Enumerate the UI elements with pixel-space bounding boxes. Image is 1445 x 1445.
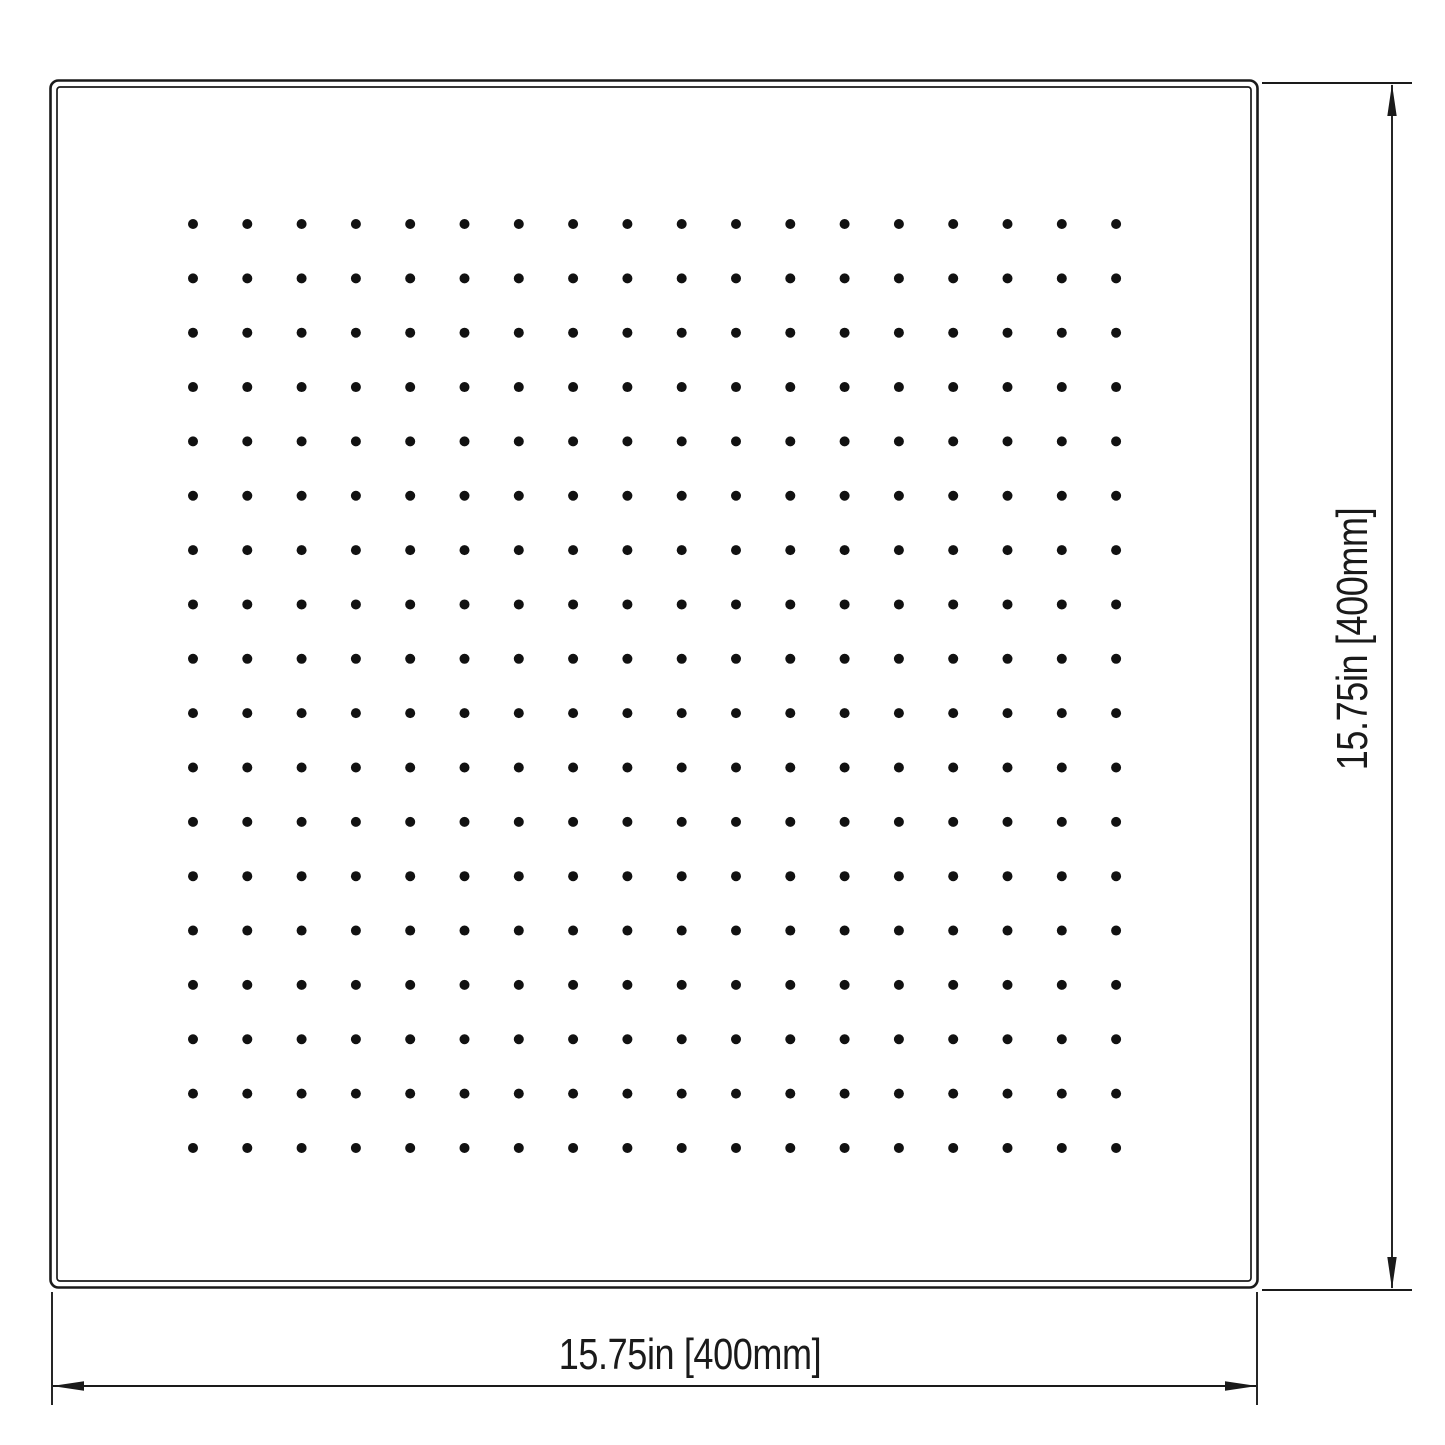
nozzle-dot bbox=[460, 817, 470, 827]
nozzle-dot bbox=[731, 1143, 741, 1153]
nozzle-dot bbox=[894, 1143, 904, 1153]
nozzle-dot bbox=[242, 273, 252, 283]
nozzle-dot bbox=[568, 1143, 578, 1153]
nozzle-dot bbox=[731, 1089, 741, 1099]
nozzle-dot bbox=[840, 1034, 850, 1044]
nozzle-grid bbox=[188, 219, 1121, 1153]
nozzle-dot bbox=[568, 926, 578, 936]
nozzle-dot bbox=[677, 1089, 687, 1099]
nozzle-dot bbox=[297, 545, 307, 555]
nozzle-dot bbox=[948, 1143, 958, 1153]
nozzle-dot bbox=[785, 871, 795, 881]
nozzle-dot bbox=[785, 382, 795, 392]
nozzle-dot bbox=[840, 1089, 850, 1099]
nozzle-dot bbox=[351, 1143, 361, 1153]
nozzle-dot bbox=[242, 599, 252, 609]
technical-drawing-canvas: 15.75in [400mm] 15.75in [400mm] bbox=[0, 0, 1445, 1445]
nozzle-dot bbox=[1057, 219, 1067, 229]
nozzle-dot bbox=[1111, 708, 1121, 718]
nozzle-dot bbox=[514, 763, 524, 773]
nozzle-dot bbox=[405, 436, 415, 446]
nozzle-dot bbox=[242, 871, 252, 881]
nozzle-dot bbox=[731, 382, 741, 392]
nozzle-dot bbox=[405, 328, 415, 338]
nozzle-dot bbox=[351, 382, 361, 392]
nozzle-dot bbox=[1057, 599, 1067, 609]
nozzle-dot bbox=[840, 817, 850, 827]
nozzle-dot bbox=[242, 491, 252, 501]
nozzle-dot bbox=[242, 382, 252, 392]
nozzle-dot bbox=[460, 382, 470, 392]
nozzle-dot bbox=[894, 654, 904, 664]
nozzle-dot bbox=[1111, 328, 1121, 338]
nozzle-dot bbox=[460, 871, 470, 881]
nozzle-dot bbox=[460, 1143, 470, 1153]
nozzle-dot bbox=[894, 273, 904, 283]
nozzle-dot bbox=[1111, 926, 1121, 936]
nozzle-dot bbox=[351, 545, 361, 555]
nozzle-dot bbox=[948, 1034, 958, 1044]
nozzle-dot bbox=[731, 328, 741, 338]
nozzle-dot bbox=[460, 1034, 470, 1044]
nozzle-dot bbox=[1111, 599, 1121, 609]
nozzle-dot bbox=[677, 491, 687, 501]
nozzle-dot bbox=[785, 328, 795, 338]
nozzle-dot bbox=[731, 654, 741, 664]
nozzle-dot bbox=[948, 491, 958, 501]
nozzle-dot bbox=[188, 545, 198, 555]
nozzle-dot bbox=[242, 436, 252, 446]
nozzle-dot bbox=[785, 817, 795, 827]
arrow-left-icon bbox=[52, 1381, 84, 1390]
nozzle-dot bbox=[1111, 436, 1121, 446]
nozzle-dot bbox=[514, 545, 524, 555]
nozzle-dot bbox=[460, 654, 470, 664]
nozzle-dot bbox=[731, 1034, 741, 1044]
nozzle-dot bbox=[297, 708, 307, 718]
nozzle-dot bbox=[514, 1089, 524, 1099]
nozzle-dot bbox=[188, 273, 198, 283]
nozzle-dot bbox=[622, 545, 632, 555]
nozzle-dot bbox=[351, 599, 361, 609]
nozzle-dot bbox=[622, 1034, 632, 1044]
nozzle-dot bbox=[514, 491, 524, 501]
nozzle-dot bbox=[568, 382, 578, 392]
nozzle-dot bbox=[1003, 436, 1013, 446]
nozzle-dot bbox=[677, 708, 687, 718]
nozzle-dot bbox=[1057, 763, 1067, 773]
nozzle-dot bbox=[514, 599, 524, 609]
nozzle-dot bbox=[948, 545, 958, 555]
nozzle-dot bbox=[785, 654, 795, 664]
nozzle-dot bbox=[785, 219, 795, 229]
nozzle-dot bbox=[677, 436, 687, 446]
nozzle-dot bbox=[297, 219, 307, 229]
nozzle-dot bbox=[894, 871, 904, 881]
nozzle-dot bbox=[622, 1143, 632, 1153]
nozzle-dot bbox=[785, 1034, 795, 1044]
nozzle-dot bbox=[188, 491, 198, 501]
nozzle-dot bbox=[405, 382, 415, 392]
nozzle-dot bbox=[568, 219, 578, 229]
nozzle-dot bbox=[894, 436, 904, 446]
nozzle-dot bbox=[894, 1089, 904, 1099]
nozzle-dot bbox=[731, 763, 741, 773]
nozzle-dot bbox=[297, 436, 307, 446]
nozzle-dot bbox=[948, 328, 958, 338]
nozzle-dot bbox=[894, 817, 904, 827]
nozzle-dot bbox=[1111, 273, 1121, 283]
nozzle-dot bbox=[622, 273, 632, 283]
nozzle-dot bbox=[297, 328, 307, 338]
nozzle-dot bbox=[188, 926, 198, 936]
nozzle-dot bbox=[731, 219, 741, 229]
nozzle-dot bbox=[242, 708, 252, 718]
nozzle-dot bbox=[622, 980, 632, 990]
nozzle-dot bbox=[1057, 273, 1067, 283]
nozzle-dot bbox=[297, 926, 307, 936]
nozzle-dot bbox=[405, 817, 415, 827]
nozzle-dot bbox=[1057, 545, 1067, 555]
nozzle-dot bbox=[405, 980, 415, 990]
nozzle-dot bbox=[405, 708, 415, 718]
nozzle-dot bbox=[1003, 871, 1013, 881]
nozzle-dot bbox=[405, 1143, 415, 1153]
nozzle-dot bbox=[1111, 1089, 1121, 1099]
nozzle-dot bbox=[568, 708, 578, 718]
nozzle-dot bbox=[622, 708, 632, 718]
nozzle-dot bbox=[514, 926, 524, 936]
nozzle-dot bbox=[351, 817, 361, 827]
nozzle-dot bbox=[1111, 817, 1121, 827]
nozzle-dot bbox=[840, 654, 850, 664]
nozzle-dot bbox=[514, 980, 524, 990]
nozzle-dot bbox=[1003, 599, 1013, 609]
nozzle-dot bbox=[1057, 980, 1067, 990]
nozzle-dot bbox=[622, 926, 632, 936]
nozzle-dot bbox=[622, 654, 632, 664]
nozzle-dot bbox=[894, 219, 904, 229]
width-dimension: 15.75in [400mm] bbox=[52, 1292, 1257, 1405]
nozzle-dot bbox=[460, 926, 470, 936]
nozzle-dot bbox=[568, 980, 578, 990]
nozzle-dot bbox=[894, 545, 904, 555]
nozzle-dot bbox=[1057, 654, 1067, 664]
nozzle-dot bbox=[568, 1089, 578, 1099]
shower-head-dimension-drawing: 15.75in [400mm] 15.75in [400mm] bbox=[0, 0, 1445, 1445]
nozzle-dot bbox=[568, 763, 578, 773]
nozzle-dot bbox=[1003, 708, 1013, 718]
nozzle-dot bbox=[731, 436, 741, 446]
nozzle-dot bbox=[948, 273, 958, 283]
nozzle-dot bbox=[677, 817, 687, 827]
nozzle-dot bbox=[188, 1034, 198, 1044]
nozzle-dot bbox=[785, 599, 795, 609]
nozzle-dot bbox=[894, 599, 904, 609]
nozzle-dot bbox=[188, 328, 198, 338]
nozzle-dot bbox=[948, 1089, 958, 1099]
nozzle-dot bbox=[405, 1034, 415, 1044]
nozzle-dot bbox=[514, 1143, 524, 1153]
nozzle-dot bbox=[677, 1143, 687, 1153]
nozzle-dot bbox=[514, 219, 524, 229]
nozzle-dot bbox=[1003, 382, 1013, 392]
nozzle-dot bbox=[840, 1143, 850, 1153]
nozzle-dot bbox=[1003, 491, 1013, 501]
nozzle-dot bbox=[188, 436, 198, 446]
nozzle-dot bbox=[460, 436, 470, 446]
nozzle-dot bbox=[514, 871, 524, 881]
nozzle-dot bbox=[1003, 654, 1013, 664]
nozzle-dot bbox=[460, 219, 470, 229]
nozzle-dot bbox=[405, 926, 415, 936]
nozzle-dot bbox=[677, 328, 687, 338]
nozzle-dot bbox=[297, 1089, 307, 1099]
height-dimension: 15.75in [400mm] bbox=[1262, 83, 1412, 1290]
nozzle-dot bbox=[242, 328, 252, 338]
nozzle-dot bbox=[894, 708, 904, 718]
nozzle-dot bbox=[677, 545, 687, 555]
nozzle-dot bbox=[840, 436, 850, 446]
nozzle-dot bbox=[677, 382, 687, 392]
nozzle-dot bbox=[948, 219, 958, 229]
nozzle-dot bbox=[785, 708, 795, 718]
nozzle-dot bbox=[785, 980, 795, 990]
nozzle-dot bbox=[894, 491, 904, 501]
nozzle-dot bbox=[297, 817, 307, 827]
nozzle-dot bbox=[840, 219, 850, 229]
nozzle-dot bbox=[297, 599, 307, 609]
nozzle-dot bbox=[731, 980, 741, 990]
nozzle-dot bbox=[622, 817, 632, 827]
nozzle-dot bbox=[1057, 817, 1067, 827]
nozzle-dot bbox=[785, 545, 795, 555]
nozzle-dot bbox=[405, 273, 415, 283]
nozzle-dot bbox=[622, 436, 632, 446]
nozzle-dot bbox=[840, 545, 850, 555]
nozzle-dot bbox=[1003, 1089, 1013, 1099]
nozzle-dot bbox=[242, 763, 252, 773]
nozzle-dot bbox=[242, 817, 252, 827]
nozzle-dot bbox=[677, 273, 687, 283]
nozzle-dot bbox=[1111, 871, 1121, 881]
nozzle-dot bbox=[460, 1089, 470, 1099]
nozzle-dot bbox=[351, 654, 361, 664]
nozzle-dot bbox=[405, 654, 415, 664]
nozzle-dot bbox=[622, 491, 632, 501]
nozzle-dot bbox=[460, 273, 470, 283]
shower-head-plate bbox=[51, 81, 1258, 1288]
nozzle-dot bbox=[351, 1089, 361, 1099]
nozzle-dot bbox=[188, 763, 198, 773]
nozzle-dot bbox=[622, 871, 632, 881]
nozzle-dot bbox=[188, 817, 198, 827]
nozzle-dot bbox=[1003, 817, 1013, 827]
nozzle-dot bbox=[622, 328, 632, 338]
nozzle-dot bbox=[405, 871, 415, 881]
nozzle-dot bbox=[242, 926, 252, 936]
nozzle-dot bbox=[677, 219, 687, 229]
width-dimension-label: 15.75in [400mm] bbox=[559, 1330, 822, 1379]
nozzle-dot bbox=[297, 273, 307, 283]
nozzle-dot bbox=[568, 817, 578, 827]
nozzle-dot bbox=[460, 763, 470, 773]
arrow-right-icon bbox=[1225, 1381, 1257, 1390]
nozzle-dot bbox=[622, 599, 632, 609]
nozzle-dot bbox=[297, 654, 307, 664]
nozzle-dot bbox=[568, 328, 578, 338]
nozzle-dot bbox=[622, 382, 632, 392]
nozzle-dot bbox=[1111, 1143, 1121, 1153]
nozzle-dot bbox=[351, 708, 361, 718]
nozzle-dot bbox=[351, 871, 361, 881]
nozzle-dot bbox=[677, 763, 687, 773]
nozzle-dot bbox=[188, 1143, 198, 1153]
nozzle-dot bbox=[460, 980, 470, 990]
nozzle-dot bbox=[297, 763, 307, 773]
nozzle-dot bbox=[1111, 763, 1121, 773]
nozzle-dot bbox=[622, 763, 632, 773]
nozzle-dot bbox=[188, 708, 198, 718]
nozzle-dot bbox=[297, 1143, 307, 1153]
arrow-down-icon bbox=[1387, 1257, 1396, 1289]
nozzle-dot bbox=[1057, 491, 1067, 501]
nozzle-dot bbox=[351, 273, 361, 283]
nozzle-dot bbox=[948, 817, 958, 827]
nozzle-dot bbox=[405, 219, 415, 229]
nozzle-dot bbox=[188, 219, 198, 229]
nozzle-dot bbox=[1057, 871, 1067, 881]
nozzle-dot bbox=[514, 436, 524, 446]
nozzle-dot bbox=[894, 980, 904, 990]
nozzle-dot bbox=[894, 1034, 904, 1044]
nozzle-dot bbox=[785, 763, 795, 773]
nozzle-dot bbox=[840, 763, 850, 773]
nozzle-dot bbox=[297, 491, 307, 501]
nozzle-dot bbox=[1111, 382, 1121, 392]
nozzle-dot bbox=[242, 1089, 252, 1099]
nozzle-dot bbox=[840, 871, 850, 881]
nozzle-dot bbox=[731, 926, 741, 936]
nozzle-dot bbox=[677, 654, 687, 664]
nozzle-dot bbox=[948, 382, 958, 392]
nozzle-dot bbox=[514, 273, 524, 283]
nozzle-dot bbox=[894, 926, 904, 936]
nozzle-dot bbox=[894, 328, 904, 338]
nozzle-dot bbox=[188, 599, 198, 609]
nozzle-dot bbox=[731, 599, 741, 609]
nozzle-dot bbox=[731, 708, 741, 718]
nozzle-dot bbox=[188, 871, 198, 881]
nozzle-dot bbox=[188, 1089, 198, 1099]
nozzle-dot bbox=[568, 545, 578, 555]
nozzle-dot bbox=[948, 599, 958, 609]
nozzle-dot bbox=[840, 328, 850, 338]
height-dimension-label: 15.75in [400mm] bbox=[1328, 508, 1377, 771]
nozzle-dot bbox=[840, 708, 850, 718]
nozzle-dot bbox=[1057, 328, 1067, 338]
nozzle-dot bbox=[1111, 491, 1121, 501]
nozzle-dot bbox=[460, 545, 470, 555]
nozzle-dot bbox=[568, 871, 578, 881]
nozzle-dot bbox=[731, 545, 741, 555]
nozzle-dot bbox=[242, 1034, 252, 1044]
nozzle-dot bbox=[677, 871, 687, 881]
nozzle-dot bbox=[1111, 545, 1121, 555]
nozzle-dot bbox=[894, 763, 904, 773]
nozzle-dot bbox=[785, 273, 795, 283]
nozzle-dot bbox=[1111, 980, 1121, 990]
nozzle-dot bbox=[1057, 382, 1067, 392]
nozzle-dot bbox=[1003, 1034, 1013, 1044]
nozzle-dot bbox=[1003, 328, 1013, 338]
nozzle-dot bbox=[1111, 219, 1121, 229]
arrow-up-icon bbox=[1387, 84, 1396, 116]
nozzle-dot bbox=[514, 654, 524, 664]
nozzle-dot bbox=[405, 545, 415, 555]
nozzle-dot bbox=[840, 382, 850, 392]
nozzle-dot bbox=[785, 926, 795, 936]
nozzle-dot bbox=[242, 219, 252, 229]
nozzle-dot bbox=[568, 1034, 578, 1044]
nozzle-dot bbox=[785, 1089, 795, 1099]
nozzle-dot bbox=[1003, 763, 1013, 773]
nozzle-dot bbox=[1111, 654, 1121, 664]
nozzle-dot bbox=[948, 926, 958, 936]
nozzle-dot bbox=[1003, 980, 1013, 990]
nozzle-dot bbox=[948, 654, 958, 664]
nozzle-dot bbox=[1057, 926, 1067, 936]
nozzle-dot bbox=[785, 436, 795, 446]
nozzle-dot bbox=[460, 708, 470, 718]
nozzle-dot bbox=[1057, 1089, 1067, 1099]
nozzle-dot bbox=[405, 491, 415, 501]
nozzle-dot bbox=[731, 273, 741, 283]
nozzle-dot bbox=[514, 708, 524, 718]
nozzle-dot bbox=[840, 273, 850, 283]
nozzle-dot bbox=[1003, 545, 1013, 555]
nozzle-dot bbox=[677, 599, 687, 609]
nozzle-dot bbox=[948, 708, 958, 718]
nozzle-dot bbox=[514, 328, 524, 338]
nozzle-dot bbox=[1057, 1034, 1067, 1044]
nozzle-dot bbox=[731, 871, 741, 881]
nozzle-dot bbox=[948, 436, 958, 446]
nozzle-dot bbox=[840, 491, 850, 501]
nozzle-dot bbox=[297, 1034, 307, 1044]
nozzle-dot bbox=[351, 328, 361, 338]
nozzle-dot bbox=[514, 382, 524, 392]
nozzle-dot bbox=[297, 382, 307, 392]
nozzle-dot bbox=[460, 491, 470, 501]
nozzle-dot bbox=[785, 491, 795, 501]
nozzle-dot bbox=[731, 817, 741, 827]
nozzle-dot bbox=[351, 980, 361, 990]
nozzle-dot bbox=[351, 763, 361, 773]
plate-inner-edge bbox=[57, 87, 1251, 1281]
nozzle-dot bbox=[1003, 926, 1013, 936]
nozzle-dot bbox=[242, 654, 252, 664]
nozzle-dot bbox=[622, 219, 632, 229]
nozzle-dot bbox=[568, 273, 578, 283]
nozzle-dot bbox=[677, 926, 687, 936]
nozzle-dot bbox=[351, 926, 361, 936]
nozzle-dot bbox=[840, 599, 850, 609]
nozzle-dot bbox=[351, 491, 361, 501]
nozzle-dot bbox=[188, 980, 198, 990]
nozzle-dot bbox=[514, 1034, 524, 1044]
nozzle-dot bbox=[948, 871, 958, 881]
